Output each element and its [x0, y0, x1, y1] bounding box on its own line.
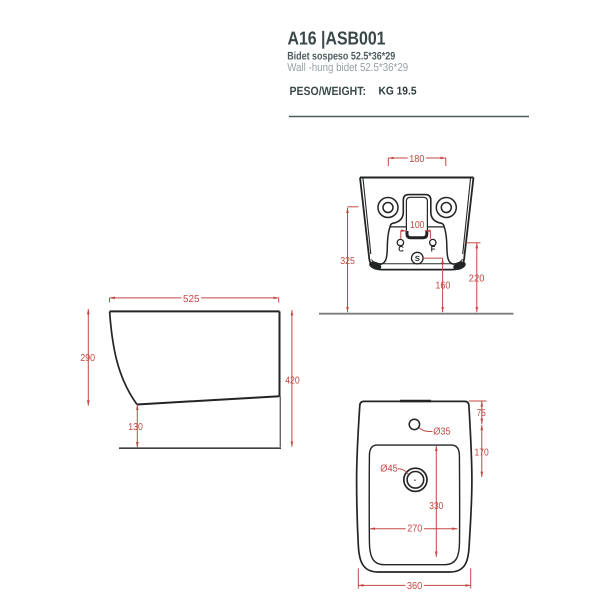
- svg-text:C: C: [398, 244, 404, 253]
- svg-text:Bidet sospeso 52.5*36*29: Bidet sospeso 52.5*36*29: [287, 50, 395, 62]
- svg-text:290: 290: [80, 353, 95, 364]
- svg-text:525: 525: [183, 294, 200, 305]
- svg-text:F: F: [431, 244, 436, 253]
- svg-text:420: 420: [285, 375, 300, 386]
- svg-text:160: 160: [435, 281, 450, 292]
- svg-text:220: 220: [469, 274, 485, 285]
- svg-text:270: 270: [407, 524, 422, 535]
- svg-text:A16 |ASB001: A16 |ASB001: [288, 27, 386, 49]
- svg-text:KG 19.5: KG 19.5: [379, 85, 417, 97]
- svg-text:180: 180: [409, 154, 425, 165]
- svg-text:170: 170: [475, 448, 490, 459]
- svg-text:360: 360: [407, 581, 423, 592]
- svg-text:S: S: [415, 254, 420, 263]
- svg-text:Ø45: Ø45: [380, 464, 398, 475]
- svg-text:75: 75: [477, 408, 486, 419]
- svg-text:130: 130: [128, 422, 143, 433]
- svg-text:PESO/WEIGHT:: PESO/WEIGHT:: [290, 84, 367, 98]
- svg-text:Wall -hung bidet 52.5*36*29: Wall -hung bidet 52.5*36*29: [287, 62, 408, 74]
- svg-text:325: 325: [340, 256, 355, 267]
- svg-text:Ø35: Ø35: [433, 427, 451, 438]
- svg-text:100: 100: [410, 220, 425, 231]
- svg-text:330: 330: [429, 501, 443, 512]
